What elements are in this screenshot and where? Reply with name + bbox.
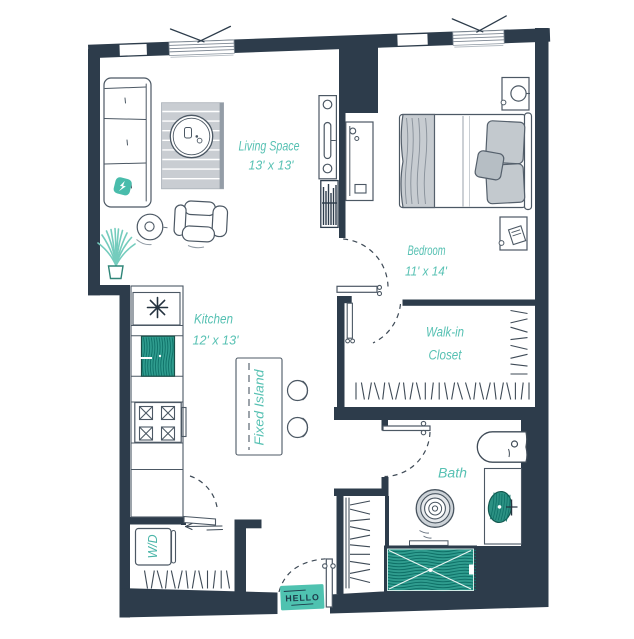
svg-text:Bedroom: Bedroom	[408, 242, 446, 258]
svg-text:Living Space: Living Space	[239, 138, 300, 154]
svg-text:12' x 13': 12' x 13'	[193, 333, 239, 348]
svg-text:13' x 13': 13' x 13'	[249, 158, 294, 173]
svg-text:Kitchen: Kitchen	[194, 311, 233, 327]
svg-text:Fixed Island: Fixed Island	[252, 369, 267, 446]
svg-text:HELLO: HELLO	[285, 592, 320, 603]
svg-text:11' x 14': 11' x 14'	[405, 264, 447, 279]
svg-text:Closet: Closet	[429, 348, 463, 363]
svg-text:W/D: W/D	[145, 535, 160, 559]
svg-text:Walk-in: Walk-in	[426, 325, 464, 340]
svg-text:Bath: Bath	[438, 466, 467, 481]
